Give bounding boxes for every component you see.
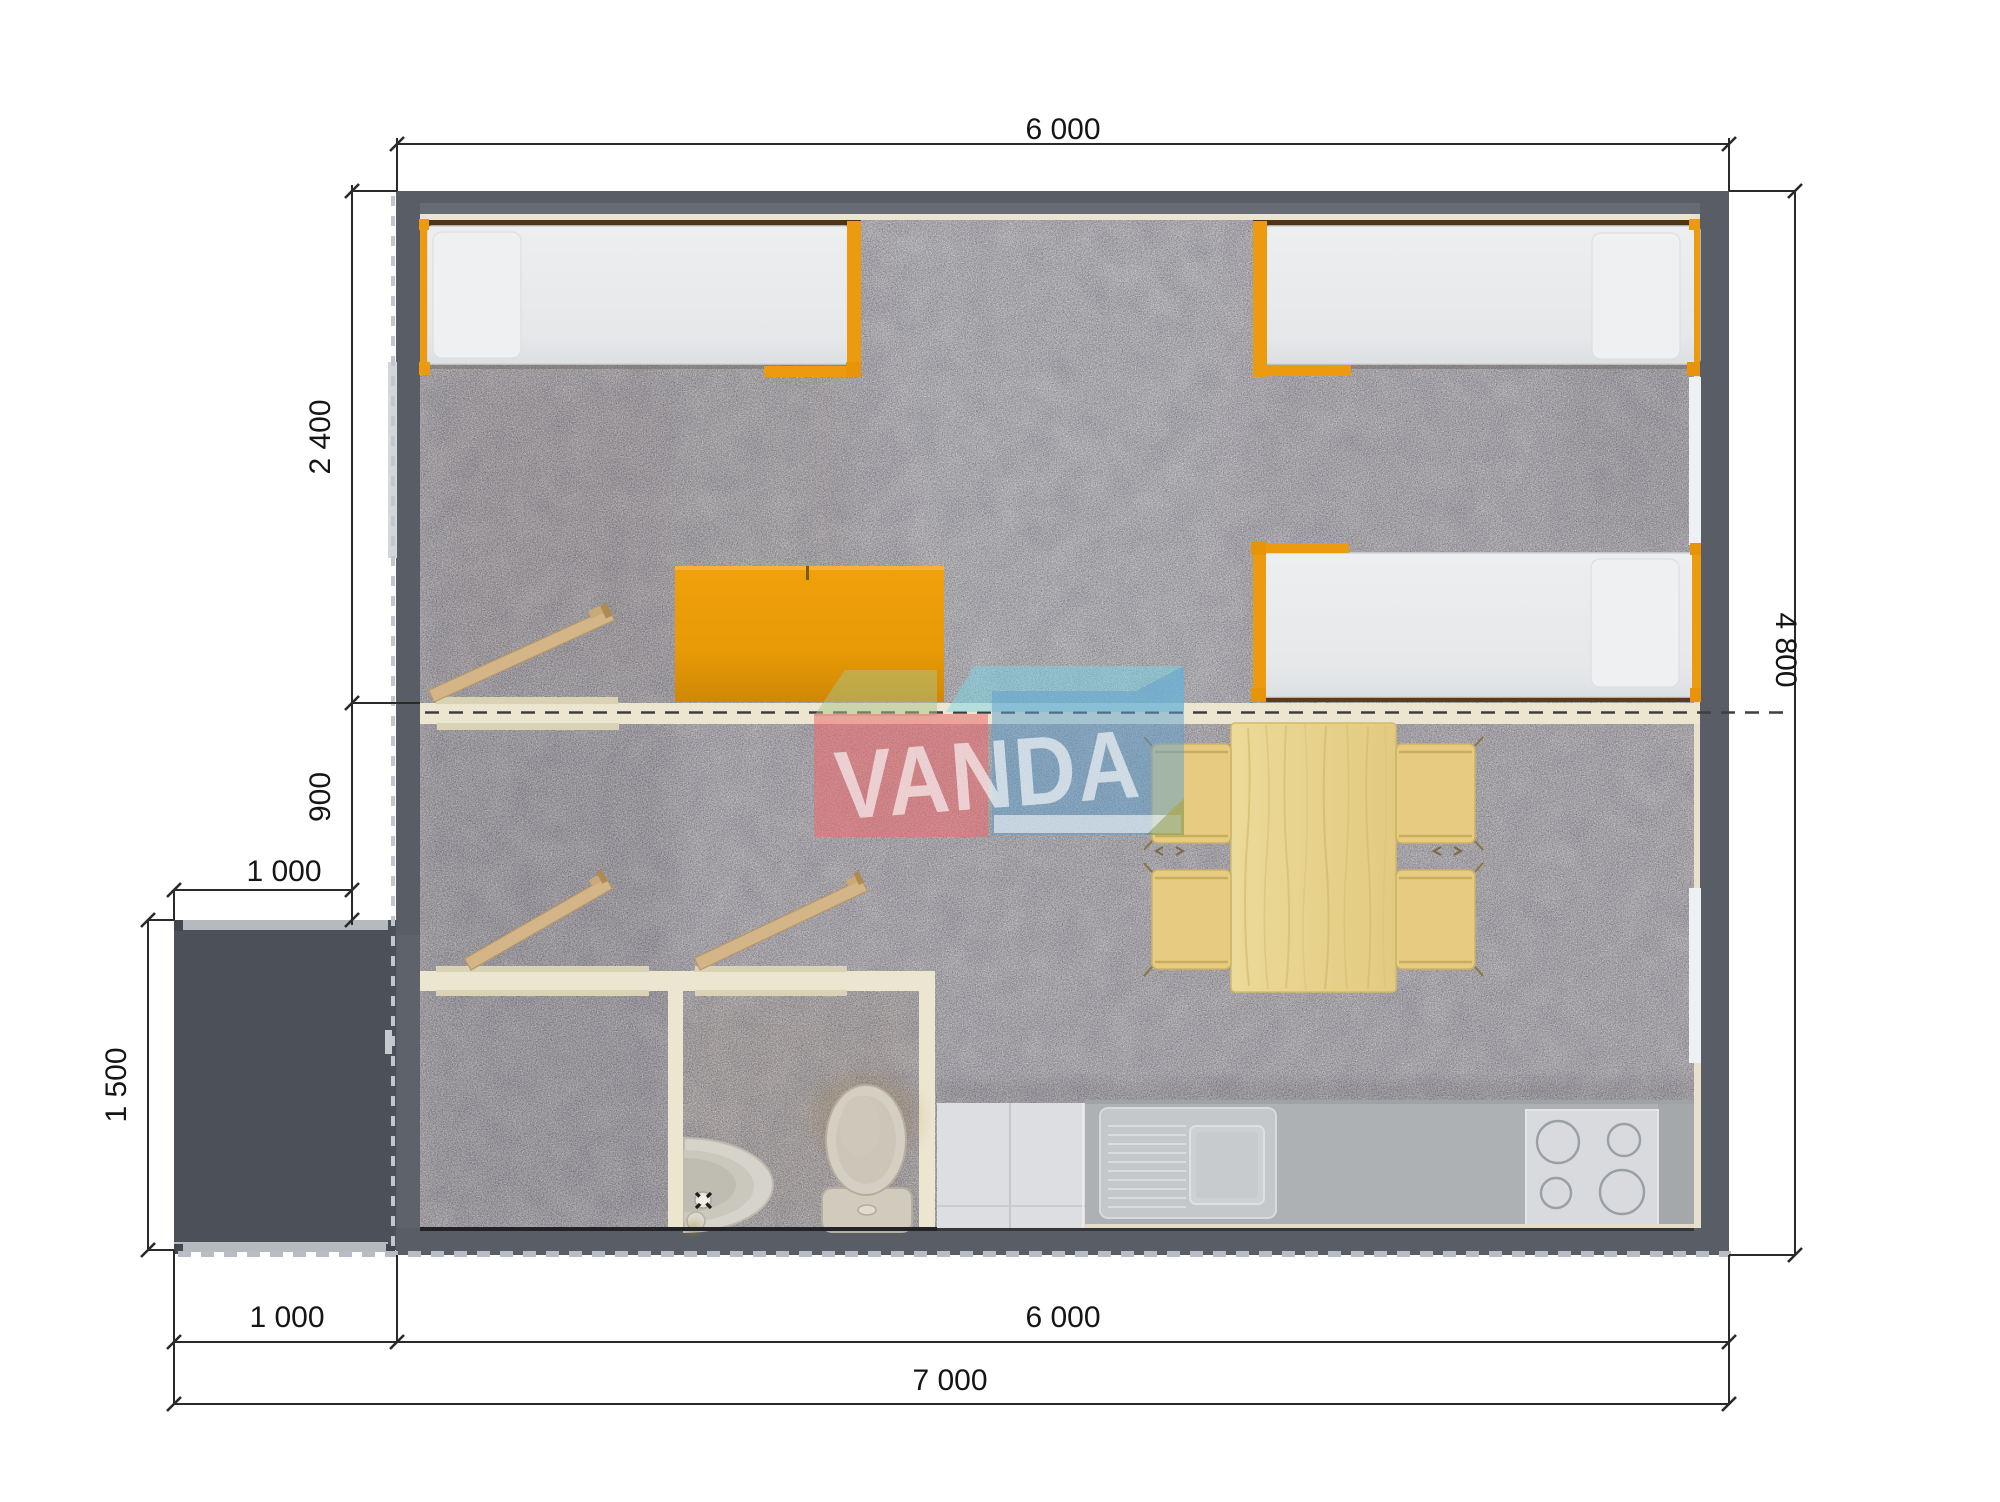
svg-text:6 000: 6 000 — [1025, 113, 1100, 146]
svg-text:1 000: 1 000 — [249, 1301, 324, 1334]
svg-text:VANDA: VANDA — [831, 709, 1144, 841]
svg-text:1 500: 1 500 — [100, 1047, 133, 1122]
svg-text:7 000: 7 000 — [912, 1364, 987, 1397]
svg-text:1 000: 1 000 — [246, 855, 321, 888]
svg-text:900: 900 — [304, 772, 337, 822]
svg-text:6 000: 6 000 — [1025, 1301, 1100, 1334]
svg-text:2 400: 2 400 — [304, 399, 337, 474]
svg-text:4 800: 4 800 — [1769, 612, 1802, 687]
